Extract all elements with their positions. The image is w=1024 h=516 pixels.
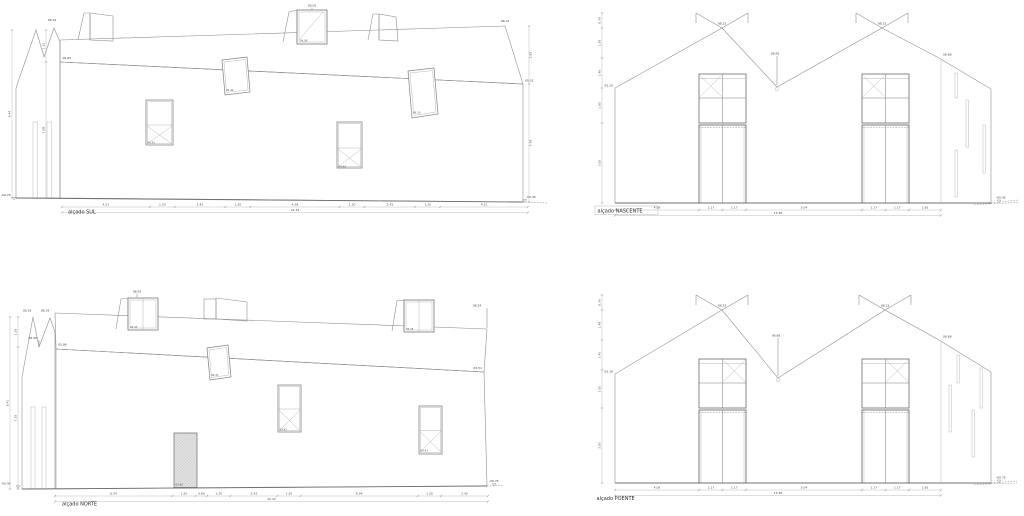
dim-label: 2.42 bbox=[197, 202, 204, 206]
dim-label: 1.17 bbox=[894, 206, 901, 210]
side-wall-slits bbox=[955, 73, 986, 197]
wall-slit bbox=[957, 355, 960, 383]
eave-left-level: 05.16 bbox=[604, 370, 613, 374]
gable-wall bbox=[615, 28, 991, 203]
wall-slit bbox=[955, 73, 958, 98]
wall-window-2: 04.41 bbox=[419, 406, 442, 454]
roof-window-2-frame bbox=[408, 68, 438, 118]
dimension-column-left: 0.76 1.48 1.45 1.65 3.05 bbox=[598, 295, 604, 483]
dim-label: 1.40 bbox=[598, 70, 602, 77]
window-2-level: 04.43 bbox=[339, 165, 347, 169]
eave-left-level: 05.20 bbox=[604, 84, 613, 88]
elevation-title: alçado POENTE bbox=[597, 496, 635, 502]
peak-2-level: 08.23 bbox=[881, 304, 890, 308]
dormer-1-top-level: 08.92 bbox=[133, 290, 142, 294]
peak-right-level: 08.24 bbox=[473, 304, 482, 308]
peak-left-2-level: 08.19 bbox=[41, 309, 50, 313]
window-1-frame bbox=[146, 100, 173, 145]
ground-line bbox=[16, 198, 523, 202]
dim-label: 7.09 bbox=[42, 127, 46, 134]
chimney-1-body bbox=[90, 13, 113, 41]
valley-drain bbox=[775, 87, 779, 91]
dim-label: 1.20 bbox=[349, 202, 356, 206]
roof-window-2: 06.10 bbox=[408, 68, 438, 118]
level-labels-left: 08.19 08.19 06.58 05.98 -00.45 bbox=[1, 309, 67, 489]
wall bbox=[60, 62, 523, 202]
door-level: 00.60 bbox=[176, 483, 184, 487]
window-1-frame bbox=[278, 385, 301, 432]
dim-label: 2.83 bbox=[529, 52, 533, 59]
profile-slit-1 bbox=[33, 122, 38, 198]
roof-window-level: 06.43 bbox=[211, 373, 219, 377]
ridge-dormer-2: 05.45 bbox=[392, 300, 434, 332]
wall-window-1: 04.43 bbox=[278, 385, 301, 432]
peak-left-1-level: 08.19 bbox=[23, 309, 32, 313]
window-1-level: 04.41 bbox=[148, 141, 156, 145]
dim-label: 0.60 bbox=[198, 492, 205, 496]
ground-right-marker bbox=[523, 200, 527, 203]
dimension-column-left: 0.76 1.50 1.40 1.65 3.05 bbox=[598, 13, 604, 203]
dim-label: 6.04 bbox=[356, 492, 363, 496]
profile-slit-1 bbox=[31, 407, 35, 489]
profile-slit-2 bbox=[47, 122, 52, 198]
dim-label: 1.17 bbox=[870, 206, 877, 210]
door-1 bbox=[699, 125, 746, 203]
door-panel bbox=[174, 433, 197, 488]
side-wall-slits bbox=[949, 355, 983, 457]
ground-left-level: -00.45 bbox=[1, 482, 11, 486]
valley-level: 06.65 bbox=[771, 52, 780, 56]
dim-label: 1.65 bbox=[598, 102, 602, 109]
dim-total-label: 15.46 bbox=[774, 211, 783, 215]
roof-window-1-level: 06.42 bbox=[226, 88, 234, 92]
chimney-1-flap bbox=[78, 13, 90, 40]
level-labels-right: 08.14 05.31 -00.45 bbox=[501, 19, 536, 202]
dormer-2-flap bbox=[392, 300, 404, 331]
ridge-flap-1 bbox=[696, 295, 748, 310]
ground-line-dashed bbox=[974, 200, 1018, 205]
valley-drain bbox=[776, 378, 780, 382]
window-2-level: 04.41 bbox=[421, 449, 429, 453]
dim-label: 2.42 bbox=[387, 202, 394, 206]
dim-label: 6.04 bbox=[110, 492, 117, 496]
chimney-2-body bbox=[379, 14, 398, 41]
dim-label: 1.17 bbox=[731, 206, 738, 210]
dim-label: 1.20 bbox=[215, 492, 222, 496]
elevation-title: alçado SUL bbox=[68, 210, 96, 216]
dim-label: 1.65 bbox=[598, 386, 602, 393]
ridge-flap-1 bbox=[696, 13, 748, 28]
valley-left-level: 06.58 bbox=[28, 336, 37, 340]
roof-window-2-level: 06.10 bbox=[413, 111, 421, 115]
roof-plane bbox=[60, 26, 523, 84]
drawing-sheet: 08.05 06.08 06.42 06.10 04.41 bbox=[0, 0, 1024, 516]
level-labels-right: 08.24 05.51 -00.75 bbox=[473, 304, 499, 487]
gable-wall bbox=[615, 310, 991, 483]
dim-label: 1.20 bbox=[181, 492, 188, 496]
dim-label: 1.17 bbox=[707, 486, 714, 490]
dim-label: 0.76 bbox=[598, 299, 602, 306]
ground-level: -00.75 bbox=[996, 476, 1006, 480]
peak-1-level: 08.23 bbox=[718, 304, 727, 308]
dim-label: 3.05 bbox=[598, 160, 602, 167]
wall-slit bbox=[980, 368, 983, 408]
dormer-top-level: 08.05 bbox=[308, 4, 317, 8]
ridge-flap-2 bbox=[856, 13, 908, 28]
dormer-1-flap bbox=[116, 298, 128, 329]
gable-window-2 bbox=[862, 74, 909, 123]
dimension-column-left: 1.36 7.28 8.41 bbox=[6, 317, 20, 489]
dim-label: 5.76 bbox=[529, 140, 533, 147]
side-gable-profile-outline bbox=[22, 317, 55, 489]
dim-label: 1.36 bbox=[14, 329, 18, 336]
wall-window-2: 04.43 bbox=[337, 122, 362, 169]
peak-2-level: 08.23 bbox=[878, 22, 887, 26]
ground-left-level: -00.25 bbox=[1, 193, 11, 197]
ground-right-level: -00.75 bbox=[489, 479, 499, 483]
wall-slit bbox=[972, 410, 975, 457]
gable-window-2 bbox=[862, 359, 909, 408]
elevation-nascente: 08.23 08.23 06.65 05.20 06.68 -00.45 0.7… bbox=[594, 0, 1024, 240]
dim-label: 1.17 bbox=[894, 486, 901, 490]
peak-right-level: 08.14 bbox=[501, 19, 510, 23]
dim-label: 4.09 bbox=[654, 486, 661, 490]
eave-left-level: 05.98 bbox=[58, 343, 67, 347]
dim-label: 7.28 bbox=[14, 415, 18, 422]
dimension-row-bottom: 4.09 1.17 1.17 5.04 1.17 1.17 1.65 15.46 bbox=[614, 206, 942, 217]
ridge-dormer-1: 08.92 06.45 bbox=[116, 290, 158, 331]
door-1 bbox=[699, 410, 746, 483]
door-2 bbox=[862, 125, 909, 203]
dim-label: 4.21 bbox=[103, 202, 110, 206]
chimney bbox=[204, 298, 247, 321]
level-labels: 08.23 08.23 06.65 05.20 06.68 -00.45 bbox=[604, 22, 1005, 203]
wall-slit bbox=[955, 150, 958, 197]
dim-label: 4.09 bbox=[654, 206, 661, 210]
dim-label: 1.17 bbox=[731, 486, 738, 490]
window-2-frame bbox=[419, 406, 442, 454]
dim-label: 0.76 bbox=[598, 17, 602, 24]
dim-label: 1.20 bbox=[286, 492, 293, 496]
chimney-flap bbox=[204, 299, 216, 319]
dim-label: 1.35 bbox=[42, 43, 46, 50]
side-gable-profile bbox=[22, 317, 55, 489]
chimney-2-flap bbox=[368, 14, 379, 40]
dim-label: 5.04 bbox=[801, 206, 808, 210]
elevation-title: alçado NORTE bbox=[62, 502, 97, 508]
chimney-body bbox=[216, 298, 247, 321]
dim-label: 1.20 bbox=[234, 202, 241, 206]
chimney-1 bbox=[78, 13, 113, 41]
dim-label: 1.20 bbox=[424, 202, 431, 206]
dormer-flap bbox=[283, 10, 297, 42]
dim-label: 1.45 bbox=[598, 352, 602, 359]
dim-label: 4.21 bbox=[481, 202, 488, 206]
dim-label: 2.42 bbox=[251, 492, 258, 496]
eave-right-level: 05.51 bbox=[473, 366, 482, 370]
dim-label: 5.04 bbox=[801, 486, 808, 490]
elevation-poente: 08.23 08.23 06.68 05.16 06.68 -00.75 0.7… bbox=[594, 285, 1024, 516]
ground-right-level: -00.45 bbox=[526, 195, 536, 199]
side-gable-profile-outline bbox=[16, 28, 60, 198]
side-gable-profile bbox=[16, 28, 60, 198]
dim-label: 8.44 bbox=[8, 111, 12, 118]
dim-label: 1.20 bbox=[159, 202, 166, 206]
dim-label: 1.65 bbox=[922, 206, 929, 210]
elevation-norte: 08.92 06.45 05.45 06.43 04.43 bbox=[0, 285, 560, 516]
wall-window-1: 04.41 bbox=[146, 100, 173, 145]
eave-right-level: 05.31 bbox=[525, 79, 534, 83]
wall-slit bbox=[966, 100, 969, 147]
dim-label: 8.41 bbox=[6, 400, 10, 407]
dormer-1-sill-level: 06.45 bbox=[130, 325, 138, 329]
peak-1-level: 08.23 bbox=[718, 22, 727, 26]
elevation-sul: 08.05 06.08 06.42 06.10 04.41 bbox=[0, 0, 560, 240]
dim-label: 2.42 bbox=[461, 492, 468, 496]
dim-label: 1.20 bbox=[426, 492, 433, 496]
profile-slit-2 bbox=[42, 407, 46, 489]
dim-label: 1.17 bbox=[870, 486, 877, 490]
dimension-row-bottom: 4.09 1.17 1.17 5.04 1.17 1.17 1.65 15.46 bbox=[614, 486, 942, 497]
door-2 bbox=[862, 410, 909, 483]
dim-label: 1.48 bbox=[598, 322, 602, 329]
dim-label: 1.17 bbox=[707, 206, 714, 210]
peak-left-level: 08.19 bbox=[48, 18, 57, 22]
dimension-row-bottom: 6.04 1.20 0.60 1.20 2.42 1.20 6.04 1.20 … bbox=[54, 492, 489, 503]
eave-right-level: 06.68 bbox=[943, 335, 952, 339]
gable-window-1 bbox=[699, 359, 746, 408]
window-2-frame bbox=[337, 122, 362, 168]
dimension-column-right: 2.83 5.76 bbox=[528, 26, 533, 202]
ground-line-dashed bbox=[487, 486, 503, 487]
gable-window-1 bbox=[699, 74, 746, 123]
dim-label: 1.50 bbox=[598, 40, 602, 47]
roof-window-1: 06.42 bbox=[222, 57, 250, 95]
ground-level: -00.45 bbox=[996, 196, 1006, 200]
dim-label: 3.05 bbox=[598, 442, 602, 449]
ridge-flap-2 bbox=[859, 295, 911, 310]
entrance-door: 00.60 bbox=[174, 433, 197, 488]
dim-total-label: 22.34 bbox=[291, 208, 300, 212]
dormer-2-sill-level: 05.45 bbox=[406, 327, 414, 331]
valley-level: 06.68 bbox=[772, 334, 781, 338]
level-labels-left: 08.19 06.84 -00.25 bbox=[1, 18, 71, 200]
eave-right-level: 06.68 bbox=[943, 53, 952, 57]
level-labels: 08.23 08.23 06.68 05.16 06.68 -00.75 bbox=[604, 304, 1005, 483]
dormer-sill-level: 06.08 bbox=[300, 39, 308, 43]
ground-line-dashed bbox=[523, 202, 548, 203]
dim-total-label: 22.32 bbox=[267, 497, 276, 501]
wall-slit bbox=[983, 125, 986, 173]
dim-total-label: 15.46 bbox=[774, 491, 783, 495]
elevation-title: alçado NASCENTE bbox=[598, 209, 643, 215]
dimension-row-bottom: 4.21 1.20 2.42 1.20 4.28 1.20 2.42 1.20 … bbox=[61, 202, 529, 213]
ground-line bbox=[22, 486, 487, 489]
dim-label: 4.28 bbox=[292, 202, 299, 206]
wall-slit bbox=[949, 385, 952, 432]
dim-label: 1.65 bbox=[922, 486, 929, 490]
window-1-level: 04.43 bbox=[280, 428, 288, 432]
ridge-dormer: 08.05 06.08 bbox=[283, 4, 327, 45]
eave-left-level: 06.84 bbox=[63, 56, 72, 60]
roof-window: 06.43 bbox=[207, 345, 231, 380]
chimney-2 bbox=[368, 14, 398, 41]
